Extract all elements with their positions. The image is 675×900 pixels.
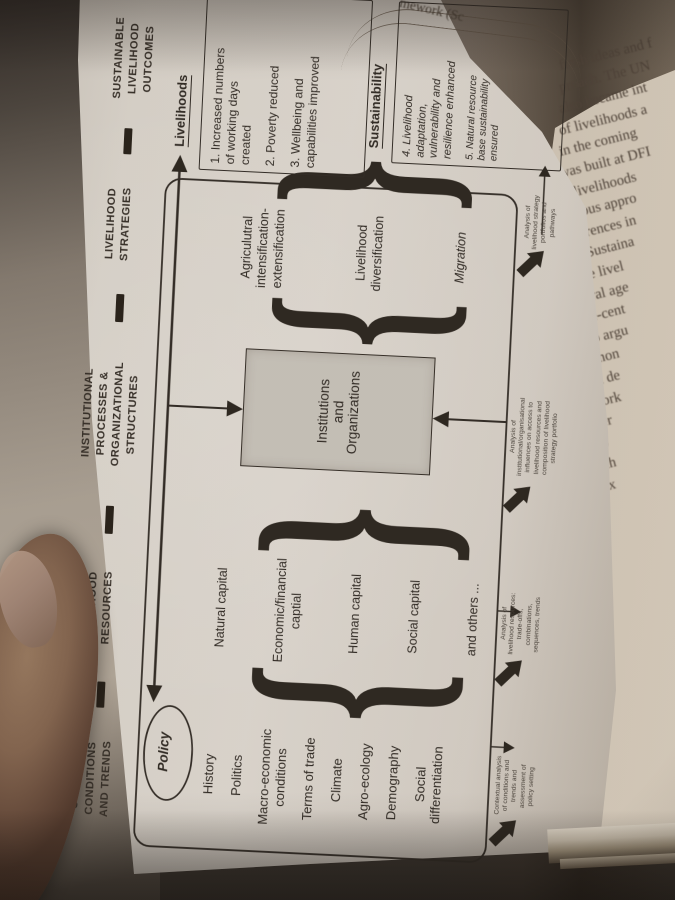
- institutions-box-label: Institutions and Organizations: [241, 349, 434, 474]
- context-item: Demography: [381, 708, 404, 859]
- strategy-item: Livelihood diversification: [351, 194, 389, 313]
- sustainability-outcome-item: 4. Livelihood adaptation, vulnerability …: [400, 9, 461, 159]
- resource-item: Economic/financial captial: [269, 540, 308, 681]
- livelihoods-outcomes-box: 1. Increased numbers of working days cre…: [199, 0, 373, 178]
- institutions-organizations-box: Institutions and Organizations: [240, 348, 436, 475]
- context-item: Macro-economic conditions: [253, 701, 292, 852]
- sustainable-livelihoods-framework-figure: CONTEXTS CONDITIONS AND TRENDS LIVELIHOO…: [59, 0, 580, 871]
- context-item: Politics: [225, 700, 248, 851]
- analysis-label-resources: Analysis of livelihood resources: trade-…: [498, 565, 545, 683]
- livelihood-outcome-item: 1. Increased numbers of working days cre…: [208, 0, 261, 165]
- analysis-label-institutions: Analysis of institutional/organisational…: [506, 361, 562, 513]
- sustainability-outcome-item: 5. Natural resource base sustainability …: [464, 12, 507, 162]
- context-item: Climate: [325, 705, 348, 856]
- analysis-label-strategies: Analysis of livelihood strategy portfoli…: [522, 172, 560, 273]
- right-brace-resources: }: [210, 509, 491, 557]
- livelihood-outcome-item: 3. Wellbeing and capabilities improved: [288, 3, 326, 168]
- livelihoods-heading: Livelihoods: [172, 74, 193, 147]
- context-item: Terms of trade: [297, 704, 320, 855]
- resource-item: Social capital: [403, 547, 426, 688]
- sustainability-outcomes-box: 4. Livelihood adaptation, vulnerability …: [391, 1, 569, 171]
- analysis-label-contexts: Contextual analysis of conditions and tr…: [492, 729, 538, 843]
- context-item: Agro-ecology: [353, 706, 376, 857]
- strategy-item: Agriculutral intensification- extensific…: [236, 188, 290, 308]
- livelihood-outcome-item: 2. Poverty reduced: [263, 2, 286, 167]
- photo-of-book-page: fresh ideas and fproach. The UNalso beca…: [0, 0, 675, 900]
- resource-item: Human capital: [344, 544, 367, 685]
